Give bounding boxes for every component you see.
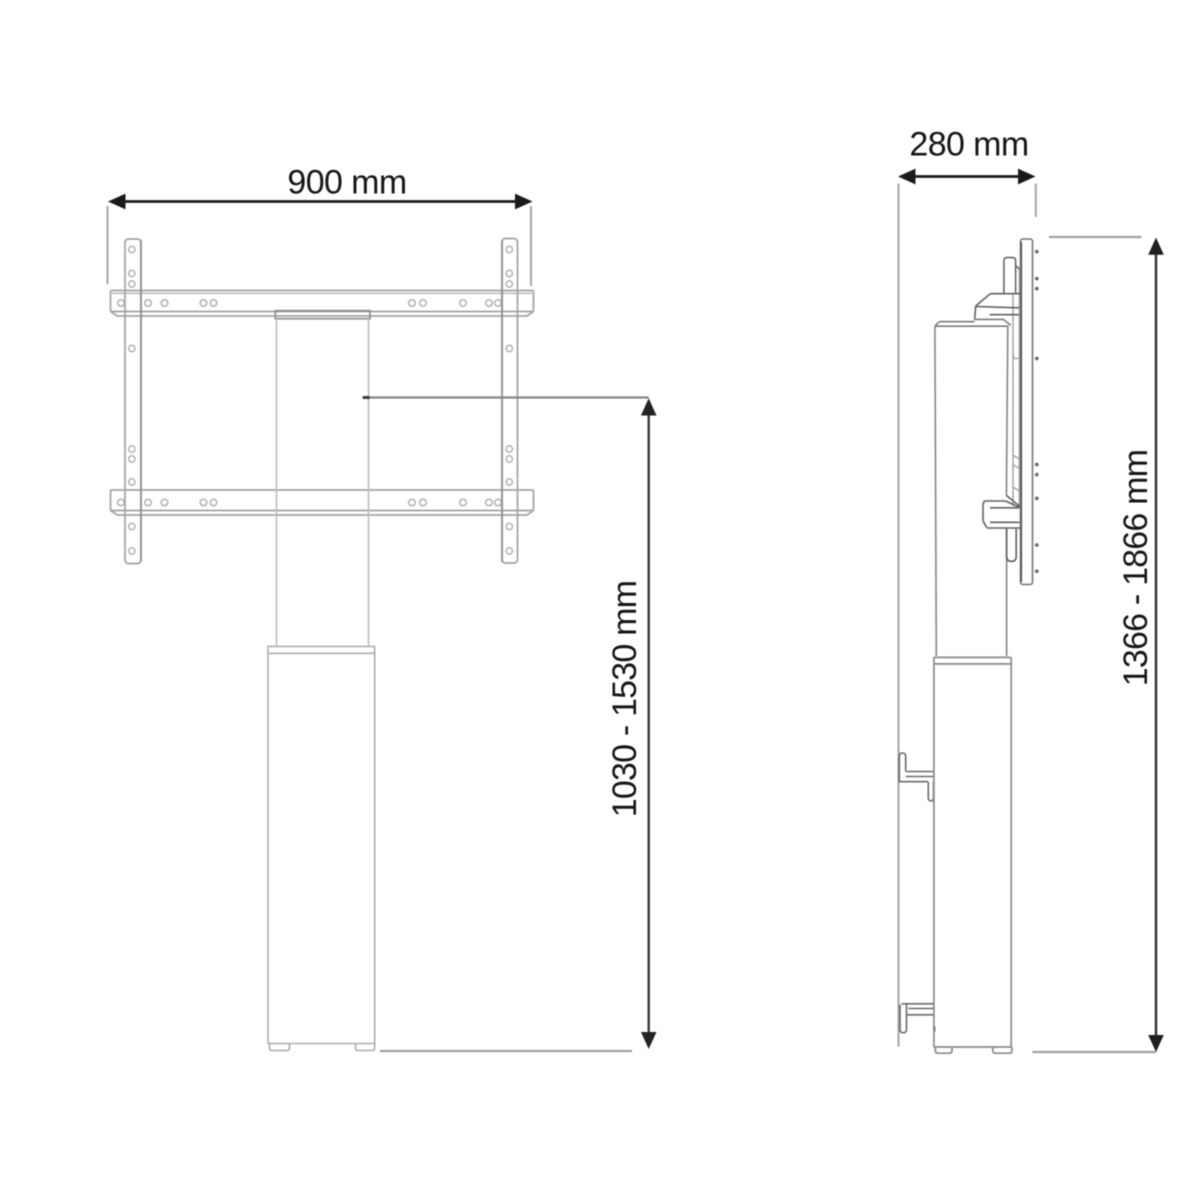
svg-text:280 mm: 280 mm: [909, 126, 1028, 164]
svg-text:1366 - 1866 mm: 1366 - 1866 mm: [1117, 450, 1155, 686]
svg-text:1030 - 1530 mm: 1030 - 1530 mm: [606, 581, 644, 817]
svg-text:900 mm: 900 mm: [287, 164, 406, 202]
